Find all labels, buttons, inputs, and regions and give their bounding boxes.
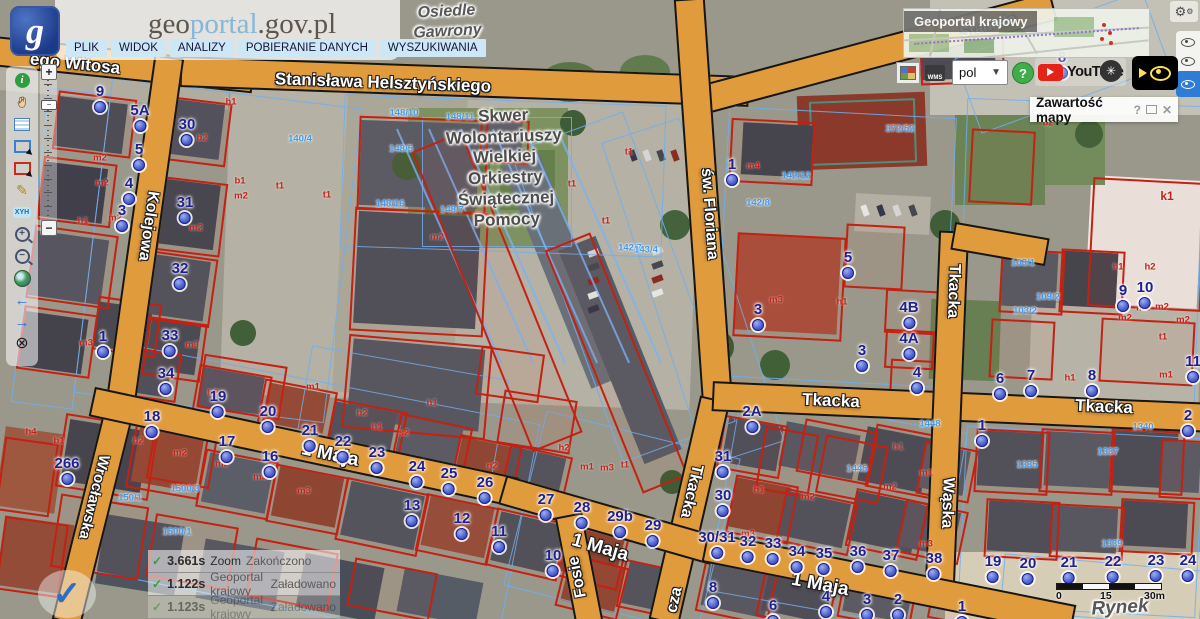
parcel-outline	[1038, 428, 1115, 496]
address-number: 32	[740, 535, 757, 549]
title-portal: portal	[190, 8, 258, 40]
address-point[interactable]: 3	[861, 593, 873, 619]
address-point[interactable]: 9	[1117, 284, 1129, 312]
address-number: 3	[861, 593, 873, 607]
address-dot-icon[interactable]	[976, 435, 988, 447]
address-point[interactable]: 10	[1137, 281, 1154, 309]
address-point[interactable]: 7	[1025, 369, 1037, 397]
eye-icon[interactable]	[1181, 38, 1195, 47]
building-code-label: h2	[356, 408, 367, 419]
building-code-label: m2	[883, 482, 897, 493]
parcel-outline	[1119, 498, 1196, 556]
address-number: 1	[956, 600, 968, 614]
zoom-out-tool[interactable]: −	[12, 247, 32, 265]
address-point[interactable]: 23	[369, 446, 386, 474]
address-dot-icon[interactable]	[97, 346, 109, 358]
address-dot-icon[interactable]	[987, 571, 999, 583]
building-code-label: m3	[600, 463, 614, 474]
address-point[interactable]: 11	[491, 525, 507, 553]
address-point[interactable]: 31	[715, 450, 732, 478]
address-dot-icon[interactable]	[767, 615, 779, 619]
address-number: 4	[123, 177, 135, 191]
address-number: 24	[409, 460, 426, 474]
address-dot-icon[interactable]	[134, 120, 146, 132]
address-point[interactable]: 25	[441, 467, 458, 495]
address-point[interactable]: 34	[158, 367, 175, 395]
address-dot-icon[interactable]	[262, 421, 274, 433]
address-number: 11	[491, 525, 507, 539]
parcel-number: 148/10	[389, 108, 418, 119]
coordinates-tool[interactable]: XYH	[12, 203, 32, 221]
building-code-label: h1	[753, 485, 764, 496]
address-point[interactable]: 5A	[130, 104, 149, 132]
address-dot-icon[interactable]	[1182, 425, 1194, 437]
clear-selection-tool[interactable]: ⊗	[12, 335, 32, 353]
building-code-label: t1	[323, 190, 331, 201]
zoom-tick	[44, 179, 52, 180]
parcel-outline	[732, 232, 846, 342]
address-point[interactable]: 33	[162, 329, 179, 357]
address-dot-icon[interactable]	[903, 317, 915, 329]
parcel-number: 143/4	[634, 245, 658, 256]
address-number: 3	[752, 303, 764, 317]
address-point[interactable]: 3	[116, 204, 128, 232]
panel-close-button[interactable]: ✕	[1162, 104, 1172, 116]
address-dot-icon[interactable]	[1022, 573, 1034, 585]
address-number: 4A	[899, 332, 918, 346]
building-code-label: m2	[173, 448, 187, 459]
building-code-label: t1	[625, 147, 633, 158]
minimap-marker-icon	[1108, 31, 1112, 35]
menu-item-wyszukiwania[interactable]: WYSZUKIWANIA	[380, 39, 486, 57]
address-point[interactable]: 22	[1105, 555, 1122, 583]
address-point[interactable]: 5	[842, 251, 854, 279]
building-code-label: h1	[77, 216, 88, 227]
address-dot-icon[interactable]	[892, 609, 904, 619]
address-point[interactable]: 8	[707, 581, 719, 609]
address-dot-icon[interactable]	[1182, 570, 1194, 582]
address-dot-icon[interactable]	[406, 515, 418, 527]
address-number: 34	[789, 545, 806, 559]
address-point[interactable]: 3	[752, 303, 764, 331]
select-rect-blue-tool[interactable]	[12, 137, 32, 155]
address-number: 3	[116, 204, 128, 218]
zoom-tick	[44, 84, 52, 85]
address-point[interactable]: 33	[765, 537, 782, 565]
street-label: Wąska	[937, 477, 957, 528]
address-point[interactable]: 2	[892, 593, 904, 619]
address-point[interactable]: 38	[926, 552, 943, 580]
wms-button[interactable]: WMS	[925, 65, 945, 81]
address-dot-icon[interactable]	[752, 319, 764, 331]
address-number: 1	[726, 158, 738, 172]
geoportal-logo-icon[interactable]: g	[10, 6, 60, 56]
address-dot-icon[interactable]	[116, 220, 128, 232]
full-extent-tool[interactable]	[12, 269, 32, 287]
address-dot-icon[interactable]	[818, 563, 830, 575]
address-point[interactable]: 26	[477, 476, 494, 504]
address-dot-icon[interactable]	[1139, 297, 1151, 309]
address-point[interactable]: 32	[172, 262, 189, 290]
building-code-label: b1	[234, 176, 245, 187]
address-dot-icon[interactable]	[928, 568, 940, 580]
address-dot-icon[interactable]	[1150, 570, 1162, 582]
address-dot-icon[interactable]	[791, 561, 803, 573]
address-point[interactable]: 20	[260, 405, 277, 433]
parcel-number: 1500/1	[162, 527, 191, 538]
legend-button[interactable]	[896, 62, 920, 84]
attributes-table-icon	[14, 118, 30, 131]
zoom-tick	[44, 165, 52, 166]
address-point[interactable]: 30	[715, 489, 732, 517]
address-dot-icon[interactable]	[493, 541, 505, 553]
address-point[interactable]: 266	[54, 457, 79, 485]
select-rect-red-tool[interactable]	[12, 159, 32, 177]
status-state: Załadowano	[271, 577, 336, 591]
building-code-label: m1	[580, 462, 594, 473]
parcel-outline	[1098, 318, 1195, 387]
address-number: 31	[715, 450, 732, 464]
chevron-down-icon: ▼	[991, 67, 1001, 78]
building-code-label: h2	[558, 443, 569, 454]
building-code-label: m3	[297, 486, 311, 497]
status-state: Załadowano	[271, 600, 336, 614]
check-icon: ✓	[152, 577, 162, 591]
help-button[interactable]: ?	[1012, 62, 1034, 84]
address-number: 8	[1086, 369, 1098, 383]
address-point[interactable]: 30	[179, 118, 196, 146]
address-dot-icon[interactable]	[181, 134, 193, 146]
address-dot-icon[interactable]	[717, 466, 729, 478]
address-point[interactable]: 16	[262, 450, 279, 478]
eye-icon	[1150, 66, 1171, 81]
address-dot-icon[interactable]	[856, 360, 868, 372]
address-dot-icon[interactable]	[994, 388, 1006, 400]
building-code-label: m1	[919, 468, 933, 479]
parcel-number: 1500/3	[170, 484, 199, 495]
address-dot-icon[interactable]	[842, 267, 854, 279]
address-point[interactable]: 1	[726, 158, 738, 186]
address-number: 13	[404, 499, 421, 513]
status-source: Zoom	[210, 554, 241, 568]
address-dot-icon[interactable]	[133, 159, 145, 171]
address-dot-icon[interactable]	[861, 609, 873, 619]
flash-icon	[1139, 68, 1147, 78]
address-point[interactable]: 2	[1182, 409, 1194, 437]
zoom-out-button[interactable]: −	[41, 220, 57, 236]
address-number: 35	[816, 547, 833, 561]
address-dot-icon[interactable]	[746, 421, 758, 433]
building-code-label: m1	[1159, 370, 1173, 381]
address-point[interactable]: 35	[816, 547, 833, 575]
title-geo: geo	[148, 8, 190, 40]
pan-tool[interactable]	[12, 93, 32, 111]
address-point[interactable]: 24	[409, 460, 426, 488]
address-number: 33	[765, 537, 782, 551]
address-dot-icon[interactable]	[1107, 571, 1119, 583]
address-number: 11	[1185, 355, 1200, 369]
panel-help-button[interactable]: ?	[1134, 104, 1141, 116]
parcel-number: 148/5	[389, 144, 413, 155]
address-number: 38	[926, 552, 943, 566]
address-dot-icon[interactable]	[264, 466, 276, 478]
district-label: OsiedleGawrony	[412, 0, 482, 43]
parcel-number: 148/16	[375, 199, 404, 210]
building-code-label: n2	[486, 461, 497, 472]
address-dot-icon[interactable]	[885, 565, 897, 577]
info-icon: i	[15, 73, 30, 88]
panel-maximize-button[interactable]	[1146, 104, 1157, 116]
address-point[interactable]: 28	[574, 501, 591, 529]
address-point[interactable]: 24	[1180, 554, 1197, 582]
address-number: 19	[210, 390, 227, 404]
address-number: 2	[1182, 409, 1194, 423]
accessibility-button[interactable]: ✳	[1100, 60, 1122, 82]
address-dot-icon[interactable]	[1025, 385, 1037, 397]
parcel-outline	[1058, 248, 1125, 315]
layer-visibility-panel	[1176, 31, 1200, 73]
maximize-icon	[1146, 105, 1157, 114]
show-layers-button[interactable]	[1176, 71, 1200, 97]
address-point[interactable]: 27	[538, 493, 555, 521]
high-contrast-button[interactable]	[1132, 56, 1178, 90]
address-dot-icon[interactable]	[726, 174, 738, 186]
address-point[interactable]: 1	[956, 600, 968, 619]
coordinates-xyh-icon: XYH	[13, 207, 31, 218]
address-point[interactable]: 1	[976, 419, 988, 447]
parcel-number: 150/1	[118, 493, 142, 504]
map-toolbar: i✎XYH+−←→⊗	[6, 66, 38, 366]
address-dot-icon[interactable]	[711, 547, 723, 559]
status-time: 3.661s	[167, 554, 205, 568]
address-number: 36	[850, 545, 867, 559]
address-point[interactable]: 36	[850, 545, 867, 573]
address-point[interactable]: 4B	[899, 301, 918, 329]
address-number: 20	[1020, 557, 1037, 571]
address-point[interactable]: 12	[454, 512, 471, 540]
menu-item-pobieranie-danych[interactable]: POBIERANIE DANYCH	[238, 39, 376, 57]
address-dot-icon[interactable]	[614, 526, 626, 538]
address-dot-icon[interactable]	[371, 462, 383, 474]
address-dot-icon[interactable]	[61, 473, 73, 485]
address-dot-icon[interactable]	[1117, 300, 1129, 312]
attributes-tool[interactable]	[12, 115, 32, 133]
address-dot-icon[interactable]	[160, 383, 172, 395]
address-point[interactable]: 2A	[742, 405, 761, 433]
language-value: pol	[959, 65, 976, 80]
address-dot-icon[interactable]	[911, 382, 923, 394]
building-code-label: m2	[234, 191, 248, 202]
parcel-number: 1445	[846, 464, 867, 475]
address-point[interactable]: 9	[94, 85, 106, 113]
address-dot-icon[interactable]	[164, 345, 176, 357]
eye-icon[interactable]	[1181, 57, 1195, 66]
previous-view-tool[interactable]: ←	[12, 291, 32, 309]
address-number: 5	[842, 251, 854, 265]
address-point[interactable]: 17	[219, 435, 236, 463]
menu-item-analizy[interactable]: ANALIZY	[170, 39, 234, 57]
address-point[interactable]: 4	[820, 590, 832, 618]
address-dot-icon[interactable]	[304, 440, 316, 452]
address-point[interactable]: 29	[645, 519, 662, 547]
address-point[interactable]: 6	[994, 372, 1006, 400]
minimap-marker-icon	[1100, 37, 1104, 41]
zoom-slider[interactable]: + − −	[40, 64, 57, 236]
address-point[interactable]: 10	[545, 549, 562, 577]
building-code-label: h1	[225, 97, 236, 108]
building-code-label: m3	[185, 340, 199, 351]
zoom-tick	[44, 206, 52, 207]
address-number: 9	[1117, 284, 1129, 298]
address-number: 8	[707, 581, 719, 595]
address-number: 21	[1061, 556, 1078, 570]
address-point[interactable]: 21	[1061, 556, 1078, 584]
parcel-number: 1339	[1101, 539, 1122, 550]
check-icon: ✓	[152, 554, 162, 568]
address-point[interactable]: 31	[177, 196, 194, 224]
address-dot-icon[interactable]	[456, 528, 468, 540]
address-dot-icon[interactable]	[647, 535, 659, 547]
address-point[interactable]: 1	[97, 330, 109, 358]
address-point[interactable]: 4A	[899, 332, 918, 360]
address-number: 2	[892, 593, 904, 607]
address-point[interactable]: 4	[911, 366, 923, 394]
address-dot-icon[interactable]	[212, 406, 224, 418]
address-number: 16	[262, 450, 279, 464]
address-dot-icon[interactable]	[707, 597, 719, 609]
address-number: 23	[1148, 554, 1165, 568]
address-dot-icon[interactable]	[767, 553, 779, 565]
status-source: Geoportal krajowy	[210, 593, 265, 619]
address-dot-icon[interactable]	[479, 492, 491, 504]
address-dot-icon[interactable]	[1187, 371, 1199, 383]
address-number: 30/31	[698, 531, 736, 545]
address-number: 18	[144, 410, 161, 424]
zoom-tick	[44, 192, 52, 193]
eye-icon	[1181, 80, 1195, 89]
address-point[interactable]: 37	[883, 549, 900, 577]
address-dot-icon[interactable]	[742, 551, 754, 563]
building-code-label: m2	[430, 232, 444, 243]
building-code-label: t1	[602, 216, 610, 227]
language-select[interactable]: pol ▼	[952, 60, 1008, 85]
building-code-label: m3	[919, 539, 933, 550]
menu-item-widok[interactable]: WIDOK	[111, 39, 166, 57]
address-number: 5A	[130, 104, 149, 118]
address-dot-icon[interactable]	[903, 348, 915, 360]
address-number: 27	[538, 493, 555, 507]
geoportal-map-viewer[interactable]: ego WitosaStanisława HelsztyńskiegoStani…	[0, 0, 1200, 619]
address-number: 12	[454, 512, 471, 526]
zoom-in-magnifier-icon: +	[15, 227, 30, 242]
zoom-in-button[interactable]: +	[41, 64, 57, 80]
address-point[interactable]: 4	[123, 177, 135, 205]
address-point[interactable]: 32	[740, 535, 757, 563]
address-dot-icon[interactable]	[820, 606, 832, 618]
overview-map[interactable]: Geoportal krajowy	[903, 8, 1150, 58]
menu-item-plik[interactable]: PLIK	[66, 39, 107, 57]
address-dot-icon[interactable]	[179, 212, 191, 224]
address-dot-icon[interactable]	[717, 505, 729, 517]
address-dot-icon[interactable]	[547, 565, 559, 577]
scale-label: 30m	[1144, 590, 1165, 602]
address-dot-icon[interactable]	[146, 426, 158, 438]
address-dot-icon[interactable]	[94, 101, 106, 113]
building-code-label: m4	[746, 161, 760, 172]
minimap-marker-icon	[1102, 23, 1106, 27]
address-point[interactable]: 8	[1086, 369, 1098, 397]
map-canvas[interactable]: ego WitosaStanisława HelsztyńskiegoStani…	[0, 0, 1200, 619]
globe-icon	[14, 270, 31, 287]
building-code-label: m3	[79, 338, 93, 349]
address-point[interactable]: 34	[789, 545, 806, 573]
scale-bar-labels: 01530m	[1056, 590, 1166, 601]
address-dot-icon[interactable]	[174, 278, 186, 290]
address-point[interactable]: 22	[335, 435, 352, 463]
address-dot-icon[interactable]	[1086, 385, 1098, 397]
address-point[interactable]: 5	[133, 143, 145, 171]
address-dot-icon[interactable]	[411, 476, 423, 488]
map-content-panel-header[interactable]: Zawartość mapy ? ✕	[1030, 97, 1178, 122]
address-point[interactable]: 21	[302, 424, 319, 452]
address-number: 6	[994, 372, 1006, 386]
address-number: 10	[545, 549, 562, 563]
address-dot-icon[interactable]	[221, 451, 233, 463]
minimap-marker-icon	[1109, 41, 1113, 45]
zoom-slider-handle[interactable]: −	[41, 100, 57, 110]
hand-icon	[15, 95, 30, 110]
building-code-label: b2	[132, 436, 143, 447]
settings-gear-icon[interactable]: ⚙⚙	[1170, 1, 1198, 22]
done-check-icon: ✓	[38, 570, 96, 618]
address-dot-icon[interactable]	[337, 451, 349, 463]
draw-tool[interactable]: ✎	[12, 181, 32, 199]
zoom-in-tool[interactable]: +	[12, 225, 32, 243]
address-number: 5	[133, 143, 145, 157]
address-dot-icon[interactable]	[540, 509, 552, 521]
info-tool[interactable]: i	[12, 71, 32, 89]
address-point[interactable]: 20	[1020, 557, 1037, 585]
scale-bar: 01530m	[1056, 583, 1166, 601]
address-point[interactable]: 13	[404, 499, 421, 527]
address-number: 3	[856, 344, 868, 358]
address-number: 34	[158, 367, 175, 381]
zoom-tick	[44, 98, 52, 99]
address-number: 1	[976, 419, 988, 433]
address-point[interactable]: 29b	[607, 510, 633, 538]
building-code-label: h1	[371, 422, 382, 433]
minimap-green-area	[964, 39, 994, 53]
address-dot-icon[interactable]	[443, 483, 455, 495]
address-point[interactable]: 6	[767, 599, 779, 619]
address-point[interactable]: 19	[985, 555, 1002, 583]
address-point[interactable]: 23	[1148, 554, 1165, 582]
address-dot-icon[interactable]	[852, 561, 864, 573]
address-point[interactable]: 11	[1185, 355, 1200, 383]
address-number: 7	[1025, 369, 1037, 383]
building-code-label: k1	[1160, 189, 1173, 203]
address-point[interactable]: 18	[144, 410, 161, 438]
address-point[interactable]: 19	[210, 390, 227, 418]
select-rectangle-icon	[14, 140, 31, 153]
building-code-label: m2	[1176, 315, 1190, 326]
address-dot-icon[interactable]	[576, 517, 588, 529]
next-view-tool[interactable]: →	[12, 313, 32, 331]
address-point[interactable]: 30/31	[698, 531, 736, 559]
overview-title: Geoportal krajowy	[904, 11, 1037, 32]
address-point[interactable]: 3	[856, 344, 868, 372]
scale-label: 15	[1100, 590, 1112, 602]
